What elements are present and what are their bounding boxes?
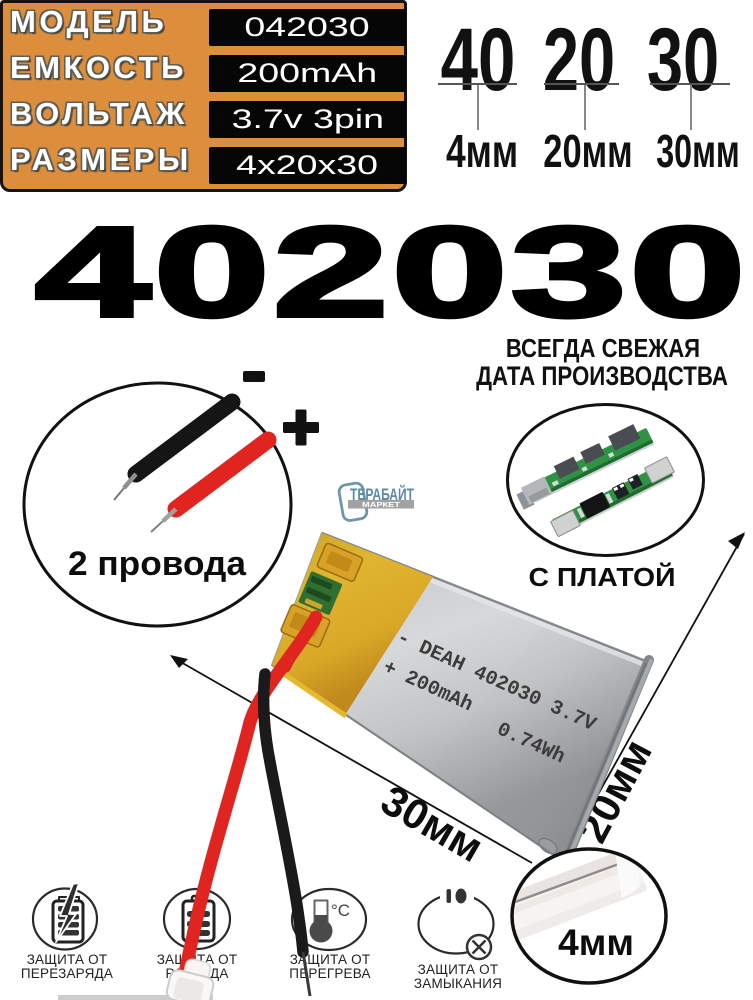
- svg-text:2 провода: 2 провода: [68, 545, 247, 583]
- svg-text:4мм: 4мм: [558, 922, 634, 963]
- svg-text:МАРКЕТ: МАРКЕТ: [362, 502, 401, 509]
- svg-text:С ПЛАТОЙ: С ПЛАТОЙ: [529, 562, 676, 592]
- svg-text:°C: °C: [331, 901, 350, 920]
